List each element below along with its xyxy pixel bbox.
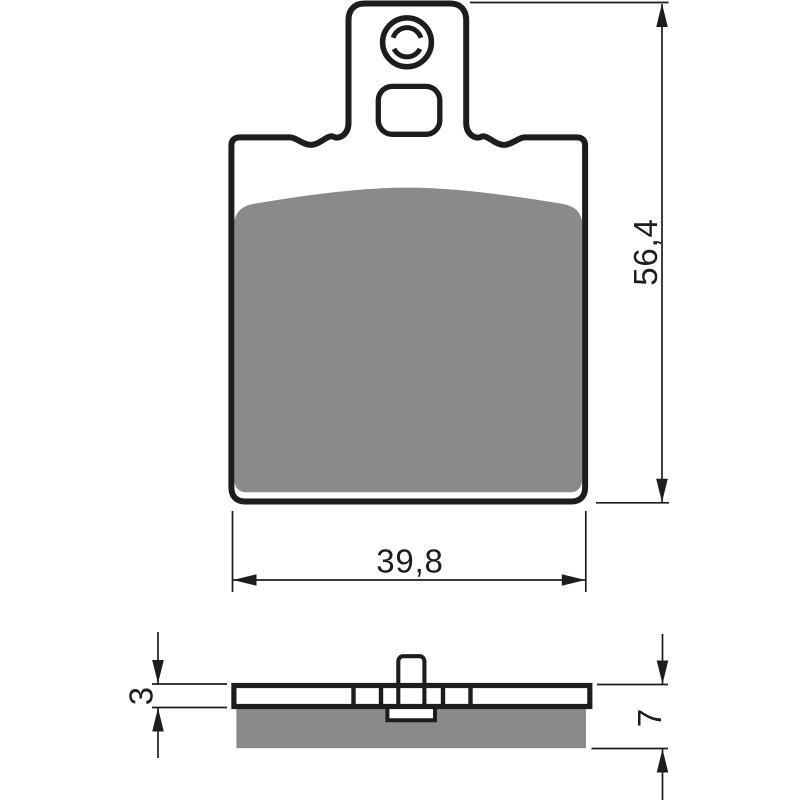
svg-text:3: 3 bbox=[123, 687, 160, 705]
svg-text:7: 7 bbox=[631, 709, 668, 727]
svg-text:39,8: 39,8 bbox=[376, 543, 443, 580]
svg-text:56,4: 56,4 bbox=[627, 218, 664, 285]
